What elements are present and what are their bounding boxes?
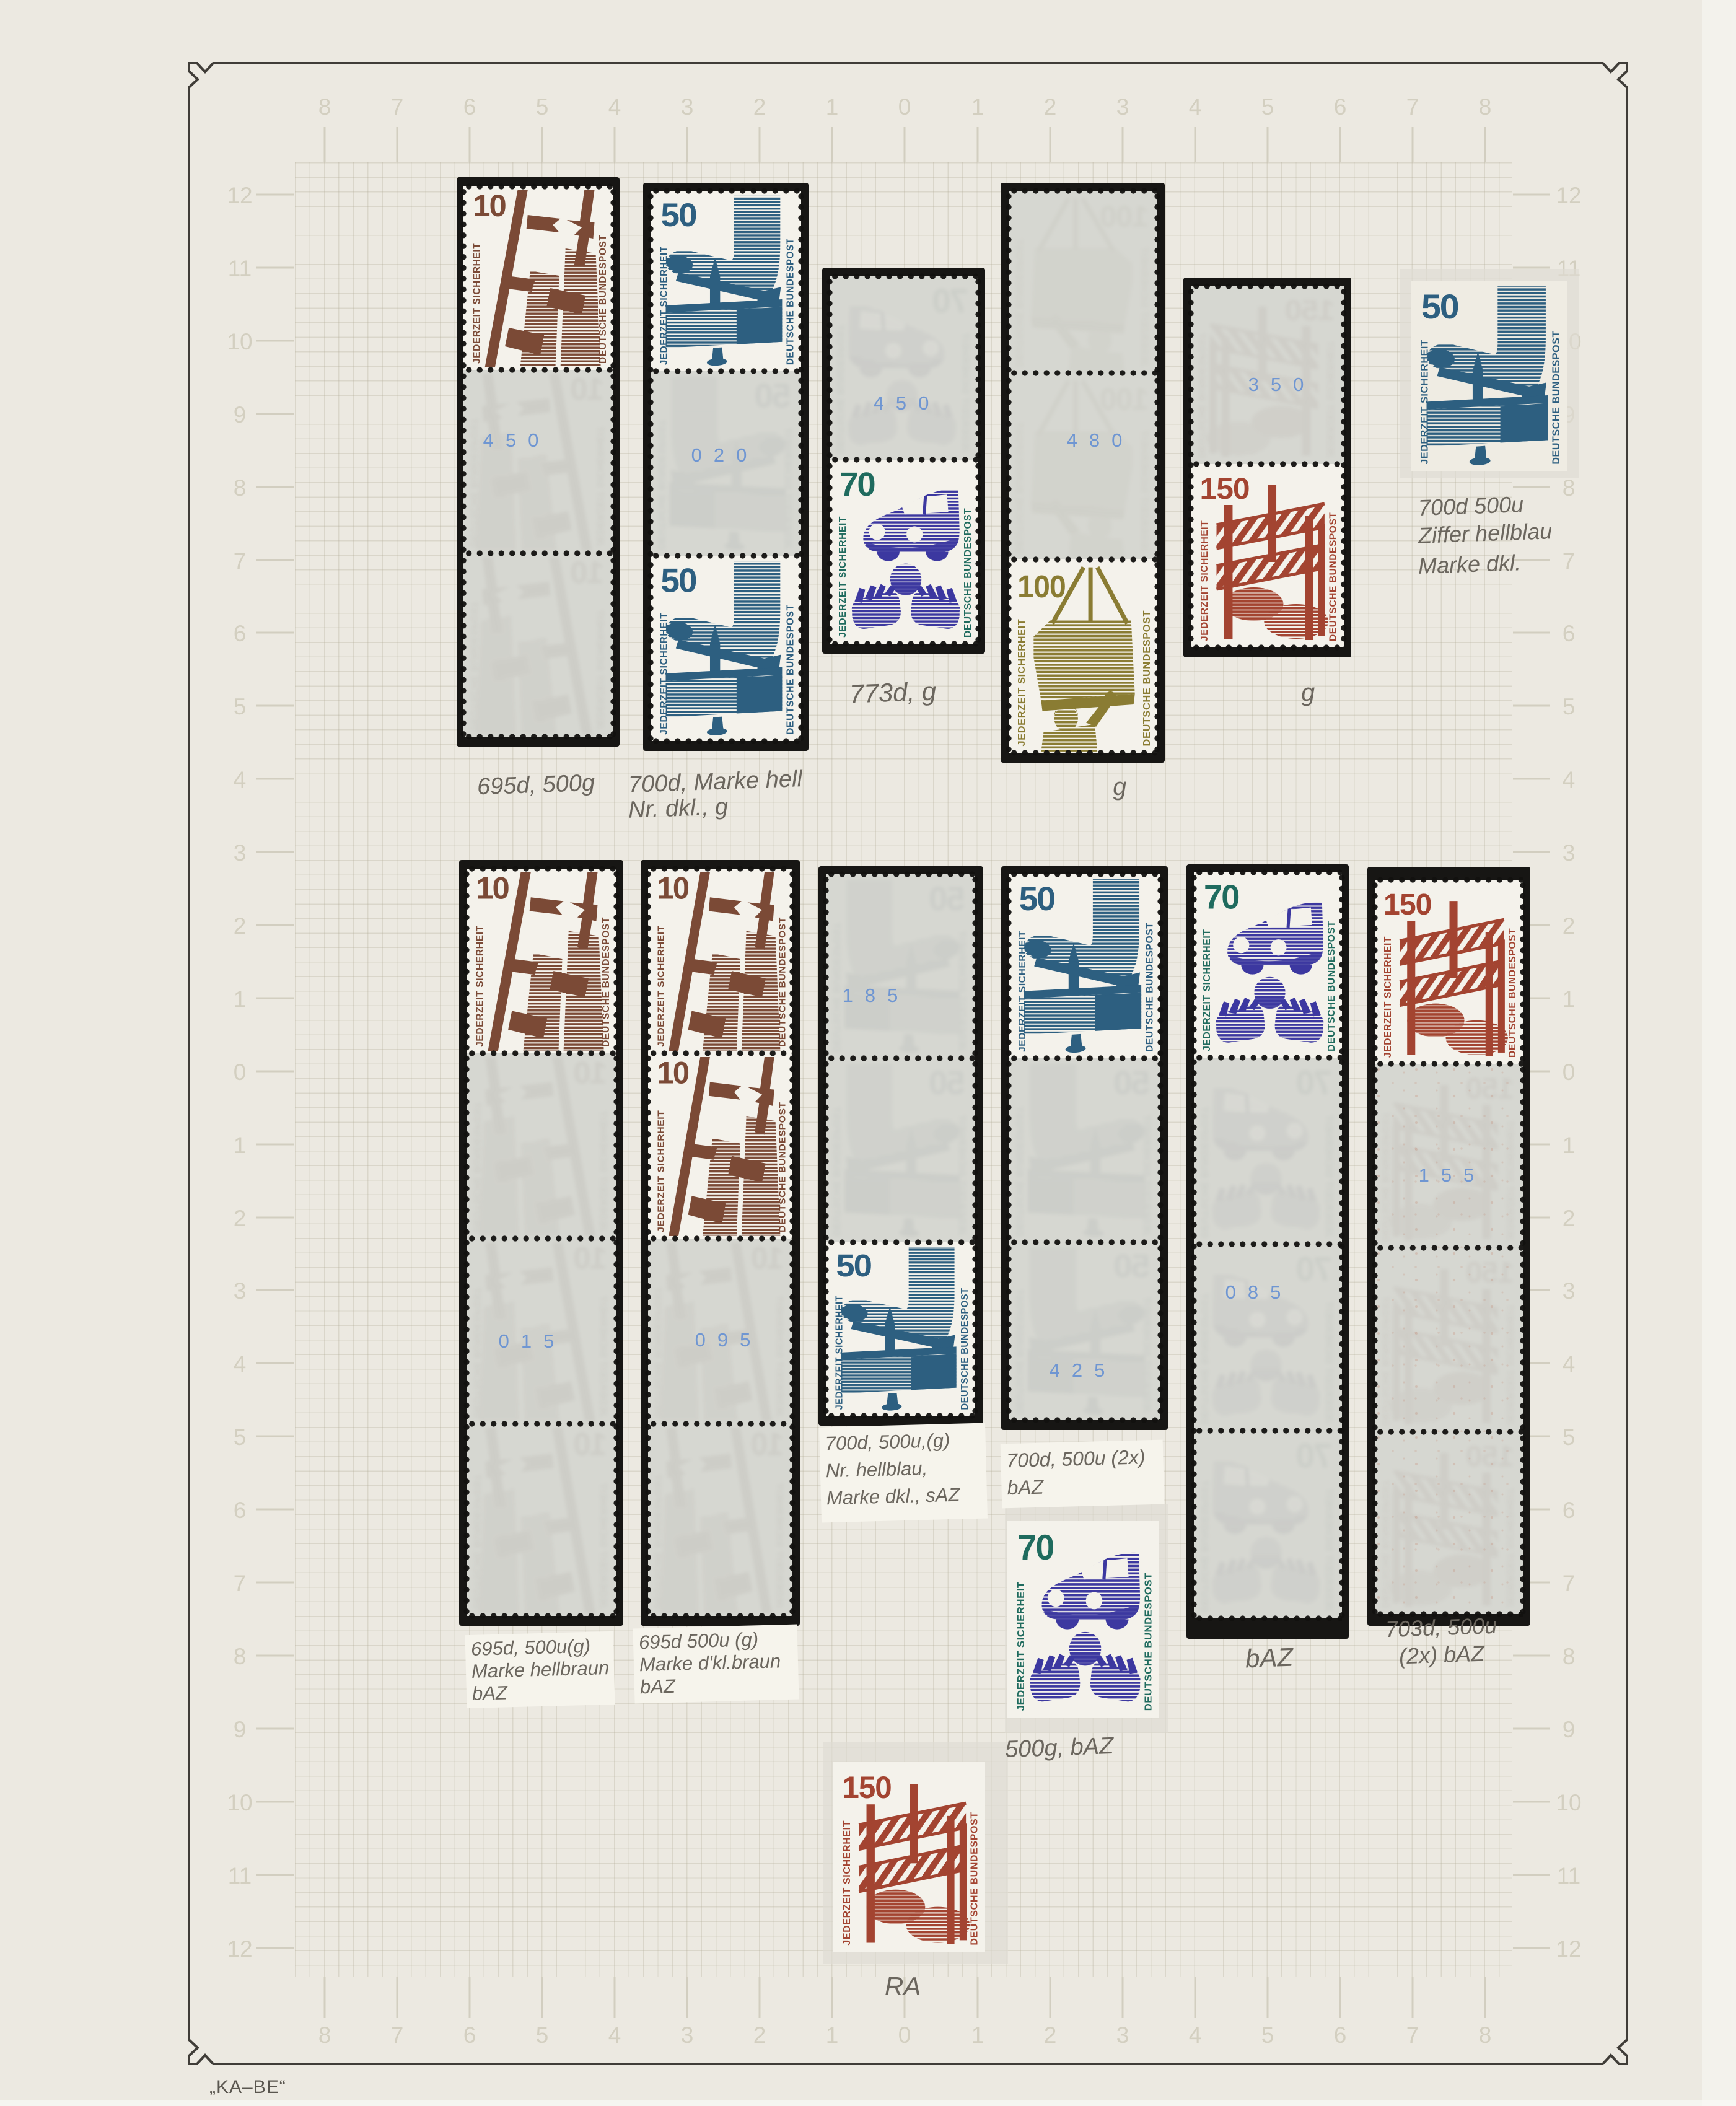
svg-text:10: 10: [1556, 1790, 1581, 1815]
svg-text:8: 8: [318, 2022, 331, 2048]
svg-text:3: 3: [1563, 840, 1576, 866]
svg-text:11: 11: [1557, 1863, 1580, 1889]
svg-text:0: 0: [1563, 1060, 1576, 1085]
svg-text:1: 1: [234, 1133, 247, 1158]
svg-text:7: 7: [1563, 1571, 1576, 1596]
svg-text:5: 5: [536, 2022, 549, 2048]
svg-text:4: 4: [1563, 767, 1576, 792]
svg-text:0: 0: [898, 2022, 911, 2048]
svg-text:2: 2: [234, 913, 247, 939]
svg-text:5: 5: [536, 94, 549, 120]
svg-text:3: 3: [1563, 1278, 1576, 1304]
svg-text:9: 9: [234, 402, 247, 428]
svg-text:5: 5: [1563, 1424, 1576, 1450]
svg-text:1: 1: [234, 986, 247, 1012]
svg-text:8: 8: [234, 1644, 247, 1669]
svg-text:12: 12: [1556, 183, 1581, 208]
svg-text:8: 8: [1563, 1644, 1576, 1669]
svg-text:7: 7: [1406, 2022, 1419, 2048]
svg-text:6: 6: [463, 2022, 476, 2048]
svg-text:7: 7: [391, 94, 404, 120]
svg-text:5: 5: [1261, 94, 1274, 120]
svg-text:10: 10: [227, 1790, 252, 1815]
svg-text:2: 2: [1563, 913, 1576, 939]
svg-text:8: 8: [318, 94, 331, 120]
svg-text:9: 9: [1563, 1717, 1576, 1742]
svg-text:3: 3: [1116, 94, 1129, 120]
svg-text:7: 7: [1563, 548, 1576, 574]
svg-text:8: 8: [1479, 94, 1492, 120]
svg-text:6: 6: [234, 621, 247, 646]
svg-text:2: 2: [1044, 94, 1057, 120]
svg-text:1: 1: [1563, 986, 1576, 1012]
svg-text:2: 2: [753, 2022, 766, 2048]
svg-text:6: 6: [234, 1498, 247, 1523]
svg-text:2: 2: [753, 94, 766, 120]
svg-text:4: 4: [608, 94, 621, 120]
svg-text:9: 9: [234, 1717, 247, 1742]
svg-text:6: 6: [1563, 621, 1576, 646]
svg-text:7: 7: [234, 1571, 247, 1596]
svg-text:4: 4: [1189, 2022, 1202, 2048]
svg-text:6: 6: [1563, 1498, 1576, 1523]
svg-text:8: 8: [1479, 2022, 1492, 2048]
svg-text:7: 7: [391, 2022, 404, 2048]
svg-text:10: 10: [227, 329, 252, 354]
svg-text:5: 5: [234, 1424, 247, 1450]
svg-text:4: 4: [234, 767, 247, 792]
svg-text:1: 1: [971, 2022, 984, 2048]
svg-text:7: 7: [1406, 94, 1419, 120]
svg-text:1: 1: [1563, 1133, 1576, 1158]
svg-text:8: 8: [234, 475, 247, 501]
svg-text:12: 12: [1556, 1936, 1581, 1962]
svg-text:8: 8: [1563, 475, 1576, 501]
svg-text:3: 3: [681, 94, 694, 120]
svg-text:3: 3: [681, 2022, 694, 2048]
svg-text:4: 4: [608, 2022, 621, 2048]
svg-text:12: 12: [227, 1936, 252, 1962]
svg-text:4: 4: [1563, 1351, 1576, 1377]
svg-text:1: 1: [826, 94, 839, 120]
svg-text:0: 0: [898, 94, 911, 120]
svg-text:3: 3: [234, 840, 247, 866]
svg-text:5: 5: [234, 694, 247, 719]
svg-text:3: 3: [234, 1278, 247, 1304]
svg-text:3: 3: [1116, 2022, 1129, 2048]
svg-text:4: 4: [1189, 94, 1202, 120]
svg-text:6: 6: [1334, 94, 1347, 120]
svg-text:1: 1: [971, 94, 984, 120]
svg-text:5: 5: [1261, 2022, 1274, 2048]
svg-text:5: 5: [1563, 694, 1576, 719]
svg-text:2: 2: [234, 1206, 247, 1231]
svg-text:7: 7: [234, 548, 247, 574]
svg-text:6: 6: [1334, 2022, 1347, 2048]
svg-text:6: 6: [463, 94, 476, 120]
svg-text:2: 2: [1563, 1206, 1576, 1231]
svg-text:2: 2: [1044, 2022, 1057, 2048]
svg-text:1: 1: [826, 2022, 839, 2048]
svg-text:4: 4: [234, 1351, 247, 1377]
svg-text:11: 11: [228, 256, 252, 281]
svg-text:0: 0: [234, 1060, 247, 1085]
svg-text:12: 12: [227, 183, 252, 208]
svg-text:11: 11: [228, 1863, 252, 1889]
